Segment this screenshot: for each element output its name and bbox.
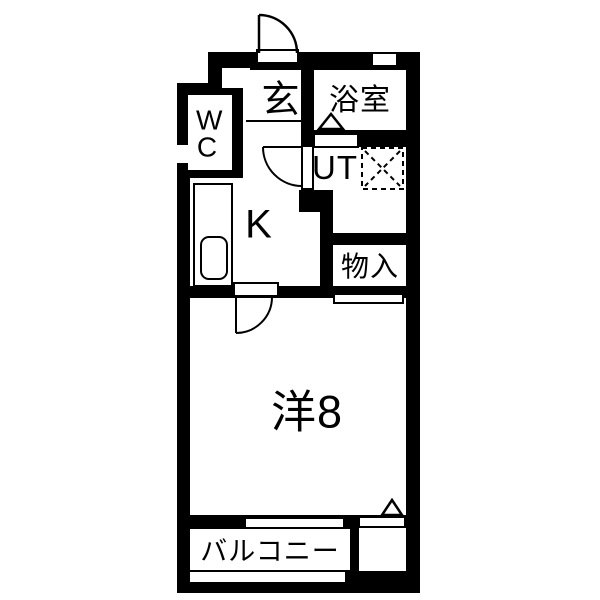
- bathroom-door-sill: [314, 134, 358, 147]
- ut-door-arc: [263, 147, 302, 186]
- room-label-wc: WC: [196, 107, 218, 162]
- closet-door-sill: [334, 294, 403, 303]
- room-label-utility: UT: [312, 149, 358, 187]
- room-label-bathroom: 浴室: [329, 75, 391, 119]
- wc-window: [172, 145, 188, 163]
- entry-corner-notch: [222, 68, 250, 88]
- room-label-storage: 物入: [341, 245, 399, 285]
- bathroom-window: [372, 53, 397, 66]
- room-label-genkan: 玄: [261, 69, 300, 124]
- kitchen-door-sill: [234, 283, 278, 296]
- service-opening: [359, 517, 405, 527]
- kitchen-sink: [201, 237, 227, 279]
- washer-pan-dashed-box: [362, 148, 403, 189]
- room-door-arc: [236, 297, 272, 333]
- entrance-threshold: [257, 50, 298, 63]
- balcony-triangle-marker: [382, 500, 402, 515]
- floor-plan: 玄 浴室 WC UT K 物入 洋8 バルコニー: [0, 0, 600, 600]
- room-label-western-room: 洋8: [271, 376, 343, 441]
- room-label-kitchen: K: [245, 203, 273, 248]
- entrance-door-arc: [259, 15, 297, 53]
- balcony-window: [245, 518, 344, 528]
- room-label-balcony: バルコニー: [200, 530, 339, 569]
